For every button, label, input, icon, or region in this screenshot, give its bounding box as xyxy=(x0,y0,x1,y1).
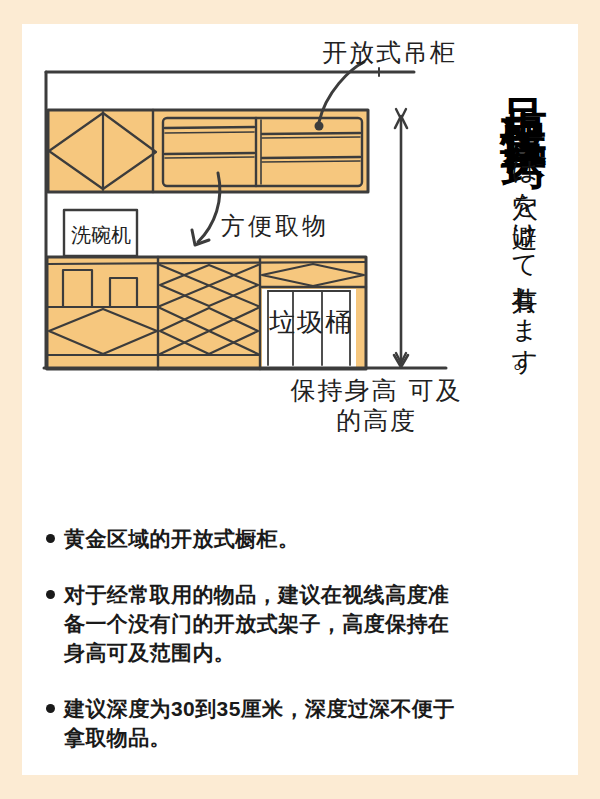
tip-item-1: 黄金区域的开放式橱柜。 xyxy=(45,524,460,553)
tips-list: 黄金区域的开放式橱柜。 对于经常取用的物品，建议在视线高度准备一个没有门的开放式… xyxy=(45,524,460,779)
height-arrow xyxy=(394,116,408,367)
tip-item-3: 建议深度为30到35厘米，深度过深不便于拿取物品。 xyxy=(45,694,460,752)
height-note-label: 保持身高 可及的高度 xyxy=(284,376,469,436)
page-title: 吊柜设置诀窍 xyxy=(498,64,551,112)
open-cabinet-label: 开放式吊柜 xyxy=(322,36,457,69)
tip-item-2: 对于经常取用的物品，建议在视线高度准备一个没有门的开放式架子，高度保持在身高可及… xyxy=(45,580,460,667)
sidebar: 吊柜设置诀窍 は穴を避けて共有します。 xyxy=(484,64,564,388)
dishwasher-label: 洗碗机 xyxy=(65,222,137,249)
easy-reach-label: 方便取物 xyxy=(221,210,329,242)
trash-bin-label: 垃圾桶 xyxy=(269,305,353,340)
page-subtitle: は穴を避けて共有します。 xyxy=(510,142,539,388)
content-panel: 开放式吊柜 方便取物 洗碗机 垃圾桶 保持身高 可及的高度 黄金区域的开放式橱柜… xyxy=(22,24,578,775)
